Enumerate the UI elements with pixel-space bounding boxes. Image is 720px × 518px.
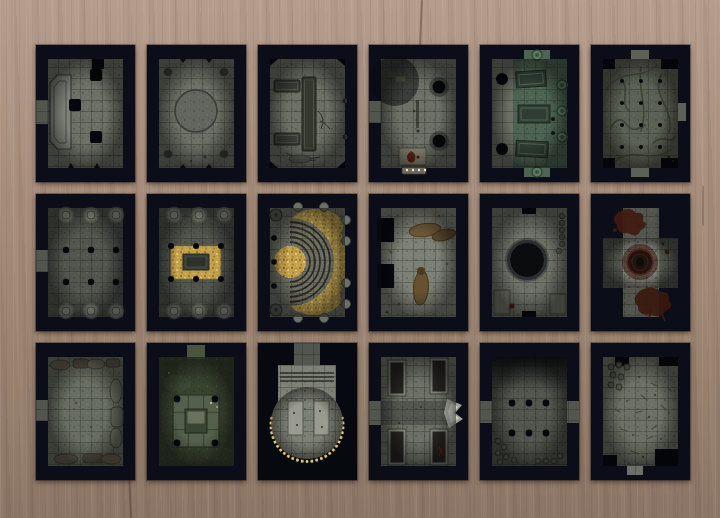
tile-dark-pillar-crossing[interactable] (480, 343, 579, 480)
tile-pillared-treasure-vault[interactable] (147, 194, 246, 331)
tile-crypt-barracks[interactable] (369, 343, 468, 480)
tile-grid (36, 45, 690, 480)
tile-ruined-hall-pits[interactable] (36, 45, 135, 182)
north-door (187, 345, 205, 359)
tile-blood-ritual-cross[interactable] (591, 194, 690, 331)
tile-corpse-chamber[interactable] (369, 194, 468, 331)
wood-crack (702, 186, 704, 226)
west-door (36, 400, 49, 421)
tile-green-marble-crypt[interactable] (480, 45, 579, 182)
west-door (36, 250, 49, 272)
tile-golden-amphitheater[interactable] (258, 194, 357, 331)
tile-rubble-hall[interactable] (36, 343, 135, 480)
west-door (36, 100, 48, 124)
west-door (369, 101, 382, 123)
tile-dark-pillared-hall[interactable] (36, 194, 135, 331)
tile-moss-altar-room[interactable] (147, 343, 246, 480)
tile-round-lit-dais[interactable] (258, 343, 357, 480)
wood-crack (419, 0, 423, 46)
tile-root-ossuary[interactable] (591, 45, 690, 182)
tile-crypt-benches[interactable] (258, 45, 357, 182)
tile-bone-strewn-chamber[interactable] (591, 343, 690, 480)
tile-circle-chamber[interactable] (147, 45, 246, 182)
tile-pit-shrine[interactable] (369, 45, 468, 182)
tile-well-chamber[interactable] (480, 194, 579, 331)
